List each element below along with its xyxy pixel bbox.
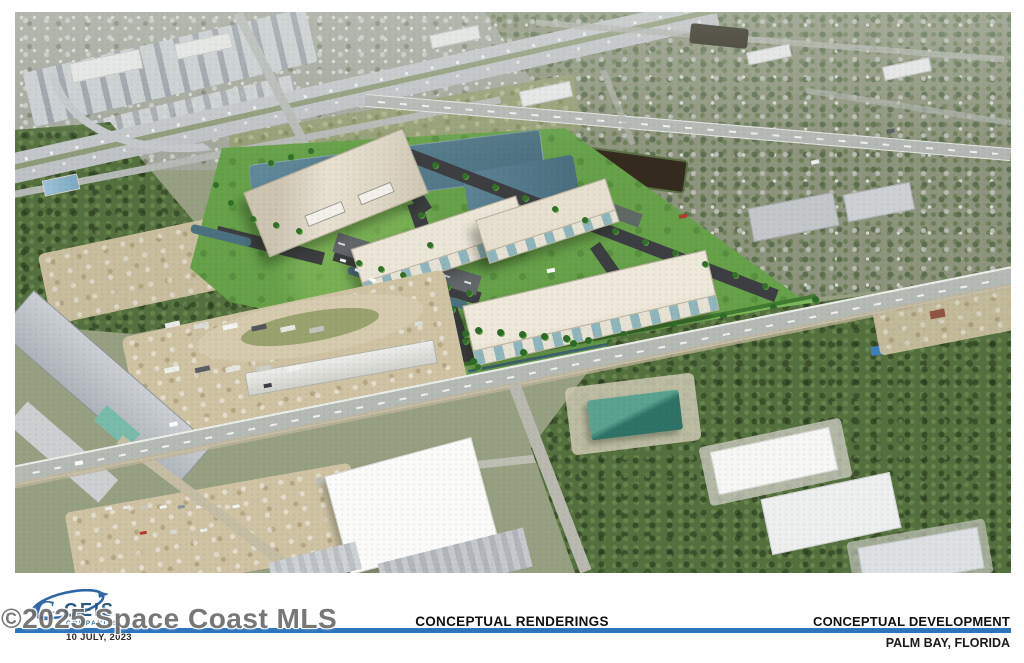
footer-right-subtitle: PALM BAY, FLORIDA	[886, 636, 1010, 650]
mls-watermark: ©2025 Space Coast MLS	[1, 603, 337, 635]
photo-haze	[15, 12, 1011, 573]
footer-right-title: CONCEPTUAL DEVELOPMENT	[813, 614, 1010, 629]
aerial-rendering-photo	[15, 12, 1011, 573]
mls-listing-image: G GEIS COMPANIES 10 JULY, 2023 CONCEPTUA…	[0, 0, 1024, 663]
